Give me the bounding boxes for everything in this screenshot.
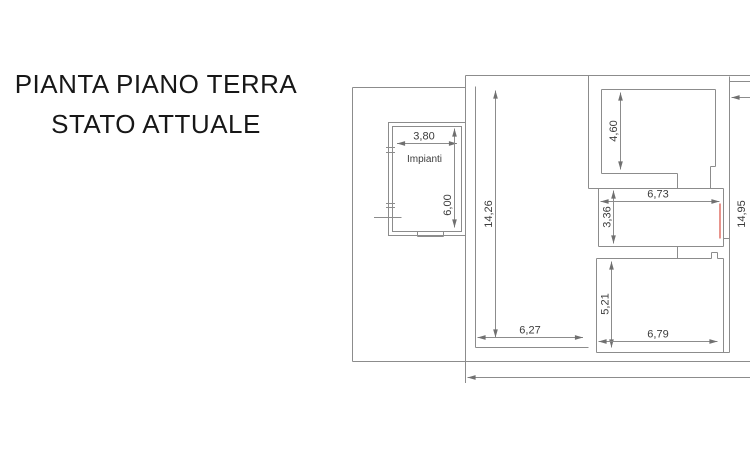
floor-plan-canvas: PIANTA PIANO TERRA STATO ATTUALE [0, 0, 750, 449]
dimension-labels: 3,80 Impianti 6,00 14,26 6,27 4,60 6,73 … [407, 120, 748, 340]
dim-label-bottom-right-width: 6,79 [647, 329, 668, 341]
dim-label-outbuilding-height: 6,00 [442, 194, 454, 215]
dim-label-middle-right-width: 6,73 [647, 189, 668, 201]
boundary-outline [353, 76, 750, 362]
dim-label-top-right-height: 4,60 [608, 120, 620, 141]
boundary-lines [353, 76, 750, 362]
dim-label-middle-right-height: 3,36 [602, 206, 614, 227]
room-label-impianti: Impianti [407, 154, 442, 165]
dim-label-right-wing-height: 14,95 [736, 200, 748, 228]
floor-plan-drawing: 3,80 Impianti 6,00 14,26 6,27 4,60 6,73 … [0, 0, 750, 449]
dim-label-left-hall-width: 6,27 [519, 325, 540, 337]
dimension-lines [397, 91, 750, 378]
dim-label-outbuilding-width: 3,80 [413, 131, 434, 143]
dim-label-left-hall-height: 14,26 [483, 200, 495, 228]
dim-label-bottom-right-height: 5,21 [600, 293, 612, 314]
window-symbol [386, 148, 395, 208]
